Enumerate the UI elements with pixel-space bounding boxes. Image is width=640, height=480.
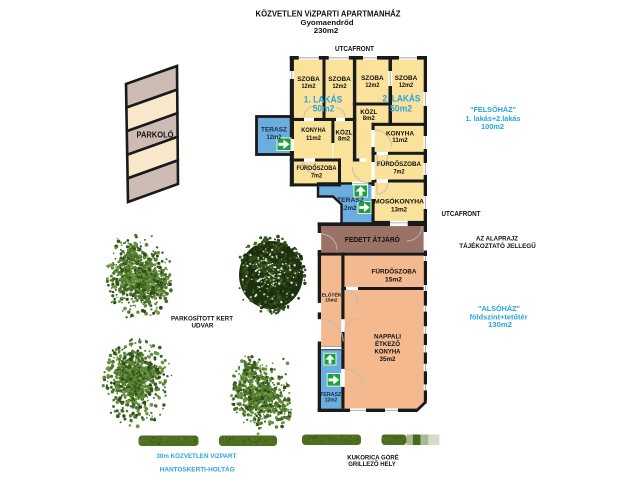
svg-text:TERASZ: TERASZ xyxy=(261,126,287,133)
svg-text:11m2: 11m2 xyxy=(392,137,408,144)
svg-text:8m2: 8m2 xyxy=(338,135,350,142)
svg-text:12m2: 12m2 xyxy=(399,82,413,89)
svg-text:TÁJÉKOZTATÓ JELLEGŰ: TÁJÉKOZTATÓ JELLEGŰ xyxy=(459,241,536,250)
svg-text:FÜRDŐSZOBA: FÜRDŐSZOBA xyxy=(297,165,337,172)
svg-text:11m2: 11m2 xyxy=(306,135,321,142)
svg-text:15m2: 15m2 xyxy=(325,298,337,304)
svg-text:12m2: 12m2 xyxy=(325,398,338,404)
svg-text:100m2: 100m2 xyxy=(481,124,504,131)
svg-text:földszint+tetőtér: földszint+tetőtér xyxy=(470,315,528,322)
svg-text:UTCAFRONT: UTCAFRONT xyxy=(442,211,482,218)
svg-text:UTCAFRONT: UTCAFRONT xyxy=(335,46,375,53)
svg-text:NAPPALI: NAPPALI xyxy=(374,334,401,341)
svg-text:15m2: 15m2 xyxy=(385,277,402,284)
svg-text:8m2: 8m2 xyxy=(363,116,376,122)
svg-text:12m2: 12m2 xyxy=(365,82,379,89)
svg-text:50m2: 50m2 xyxy=(390,103,412,113)
svg-text:13m2: 13m2 xyxy=(391,207,407,214)
svg-text:AZ ALAPRAJZ: AZ ALAPRAJZ xyxy=(476,236,518,243)
svg-text:2. LAKÁS: 2. LAKÁS xyxy=(383,92,421,103)
svg-text:UDVAR: UDVAR xyxy=(192,322,214,329)
svg-text:7m2: 7m2 xyxy=(311,172,322,179)
svg-text:"ALSÓHÁZ": "ALSÓHÁZ" xyxy=(478,304,520,313)
svg-text:130m2: 130m2 xyxy=(488,322,512,329)
svg-text:12m2: 12m2 xyxy=(333,83,347,90)
svg-text:FÜRDŐSZOBA: FÜRDŐSZOBA xyxy=(377,161,422,168)
svg-text:KONYHA: KONYHA xyxy=(375,349,401,356)
svg-text:35m2: 35m2 xyxy=(380,356,396,363)
svg-text:FÜRDŐSZOBA: FÜRDŐSZOBA xyxy=(372,267,417,276)
svg-text:MOSÓKONYHA: MOSÓKONYHA xyxy=(374,196,424,205)
svg-text:KONYHA: KONYHA xyxy=(301,127,326,134)
svg-text:GRILLEZŐ HELY: GRILLEZŐ HELY xyxy=(348,459,396,468)
svg-text:TERASZ: TERASZ xyxy=(337,197,364,204)
svg-text:ÉTKEZŐ: ÉTKEZŐ xyxy=(375,339,400,348)
svg-text:FEDETT ÁTJÁRÓ: FEDETT ÁTJÁRÓ xyxy=(345,235,401,244)
svg-text:12m2: 12m2 xyxy=(302,83,316,90)
svg-text:1. lakás+2.lakás: 1. lakás+2.lakás xyxy=(466,116,521,123)
svg-text:230m2: 230m2 xyxy=(314,26,339,35)
svg-text:PARKOSÍTOTT KERT: PARKOSÍTOTT KERT xyxy=(171,314,233,323)
svg-text:50m2: 50m2 xyxy=(313,103,335,113)
svg-text:HANTOSKERTI-HOLTÁG: HANTOSKERTI-HOLTÁG xyxy=(160,467,235,474)
svg-text:PARKOLÓ: PARKOLÓ xyxy=(137,131,174,140)
svg-text:12m2: 12m2 xyxy=(267,134,282,141)
svg-text:7m2: 7m2 xyxy=(394,168,405,175)
svg-text:"FELSŐHÁZ": "FELSŐHÁZ" xyxy=(470,105,516,114)
svg-text:30m KÖZVETLEN ViZPART: 30m KÖZVETLEN ViZPART xyxy=(156,453,236,460)
svg-text:12m2: 12m2 xyxy=(341,205,357,212)
